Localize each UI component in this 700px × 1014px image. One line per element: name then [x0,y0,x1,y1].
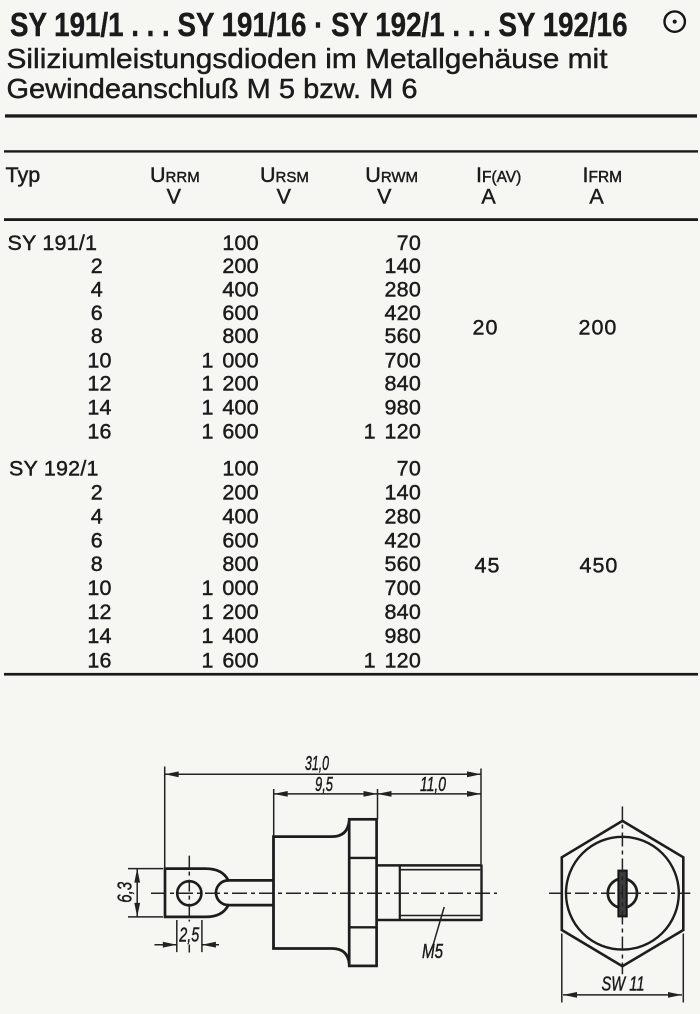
svg-text:280: 280 [385,277,421,301]
svg-text:1 120: 1 120 [364,420,421,444]
svg-text:200: 200 [222,481,258,505]
svg-text:SW 11: SW 11 [602,974,645,996]
svg-text:8: 8 [91,552,103,576]
svg-text:560: 560 [385,552,421,576]
svg-text:700: 700 [385,348,421,372]
svg-text:31,0: 31,0 [305,753,329,775]
svg-text:A: A [589,185,604,209]
svg-text:200: 200 [222,254,258,278]
svg-text:800: 800 [222,324,258,348]
svg-text:SY 191/1 . . . SY 191/16 · SY: SY 191/1 . . . SY 191/16 · SY 192/1 . . … [10,6,628,43]
svg-text:2: 2 [91,254,103,278]
svg-text:70: 70 [397,231,421,255]
svg-text:200: 200 [579,316,618,340]
svg-text:1 600: 1 600 [201,648,258,672]
svg-text:10: 10 [87,348,111,372]
svg-text:980: 980 [385,624,421,648]
svg-text:14: 14 [87,395,111,419]
svg-text:6: 6 [91,528,103,552]
svg-text:URRM: URRM [150,163,200,187]
svg-text:8: 8 [91,324,103,348]
svg-text:100: 100 [222,231,258,255]
svg-text:Typ: Typ [6,163,41,187]
svg-text:2,5: 2,5 [179,925,200,947]
svg-text:SY 191/1: SY 191/1 [8,231,98,255]
svg-text:Siliziumleistungsdioden im Met: Siliziumleistungsdioden im Metallgehäuse… [7,43,608,74]
svg-text:10: 10 [87,576,111,600]
svg-text:V: V [377,185,392,209]
svg-text:560: 560 [385,324,421,348]
svg-text:420: 420 [385,301,421,325]
svg-text:IFRM: IFRM [583,163,623,187]
svg-text:16: 16 [87,420,111,444]
svg-text:1 120: 1 120 [364,648,421,672]
svg-text:400: 400 [222,277,258,301]
svg-text:840: 840 [385,371,421,395]
svg-text:1 200: 1 200 [201,371,258,395]
svg-text:A: A [481,185,496,209]
svg-text:11,0: 11,0 [420,774,446,796]
svg-text:SY 192/1: SY 192/1 [9,457,99,481]
svg-text:600: 600 [222,301,258,325]
svg-text:1 200: 1 200 [201,600,258,624]
svg-text:1 000: 1 000 [201,348,258,372]
svg-text:V: V [277,185,292,209]
svg-text:800: 800 [222,552,258,576]
svg-text:400: 400 [222,505,258,529]
svg-text:4: 4 [91,277,103,301]
svg-text:M5: M5 [422,941,444,963]
svg-text:2: 2 [91,481,103,505]
svg-text:URSM: URSM [260,163,309,187]
svg-text:600: 600 [222,528,258,552]
svg-text:140: 140 [385,481,421,505]
svg-text:980: 980 [385,395,421,419]
svg-text:70: 70 [397,457,421,481]
svg-text:840: 840 [385,600,421,624]
svg-text:700: 700 [385,576,421,600]
svg-text:6: 6 [91,301,103,325]
svg-text:100: 100 [222,457,258,481]
svg-text:140: 140 [385,254,421,278]
svg-text:6,3: 6,3 [115,882,137,903]
svg-text:45: 45 [475,554,501,578]
svg-text:9,5: 9,5 [315,774,334,796]
svg-text:1 400: 1 400 [201,624,258,648]
svg-text:4: 4 [91,505,103,529]
svg-text:16: 16 [87,648,111,672]
svg-text:1 600: 1 600 [201,420,258,444]
svg-text:V: V [167,185,182,209]
svg-text:420: 420 [385,528,421,552]
svg-text:14: 14 [87,624,111,648]
svg-text:450: 450 [580,554,619,578]
svg-text:280: 280 [385,505,421,529]
svg-text:12: 12 [87,371,111,395]
svg-text:12: 12 [87,600,111,624]
svg-text:20: 20 [473,316,499,340]
svg-text:1 400: 1 400 [201,395,258,419]
svg-text:URWM: URWM [365,163,418,187]
svg-text:1 000: 1 000 [201,576,258,600]
svg-text:IF(AV): IF(AV) [476,163,521,187]
svg-text:Gewindeanschluß M 5 bzw. M 6: Gewindeanschluß M 5 bzw. M 6 [7,73,418,104]
